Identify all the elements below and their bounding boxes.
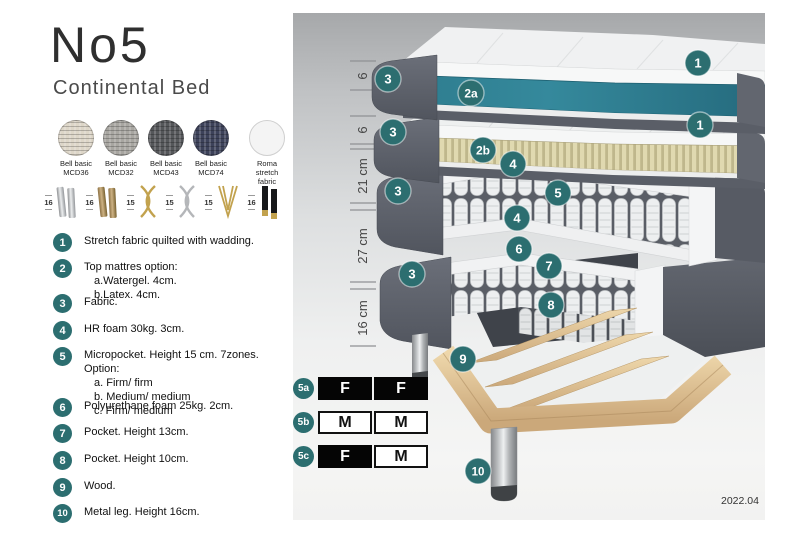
list-item-number-badge: 7 xyxy=(53,424,72,443)
list-item-number-badge: 6 xyxy=(53,398,72,417)
dimension-label: 6 xyxy=(355,72,370,79)
layer-badge: 1 xyxy=(685,50,711,76)
firmness-row-badge: 5b xyxy=(293,412,314,433)
svg-text:1: 1 xyxy=(694,56,701,71)
list-item-text: Wood. xyxy=(84,479,116,493)
firmness-row: 5c F M xyxy=(293,445,428,468)
firmness-row-badge: 5a xyxy=(293,378,314,399)
list-item-text: HR foam 30kg. 3cm. xyxy=(84,322,184,336)
firmness-cell: F xyxy=(318,445,372,468)
svg-text:3: 3 xyxy=(389,125,396,140)
list-item-subtext: a.Watergel. 4cm. xyxy=(94,274,178,288)
svg-text:3: 3 xyxy=(384,72,391,87)
dimension-scale: 6 6 21 cm 27 cm 16 cm xyxy=(350,61,376,346)
list-item-number-badge: 9 xyxy=(53,478,72,497)
firmness-row: 5a F F xyxy=(293,377,428,400)
list-item-number-badge: 2 xyxy=(53,259,72,278)
layer-badge: 2b xyxy=(470,137,496,163)
list-item-text: Polyurethane foam 25kg. 2cm. xyxy=(84,399,233,413)
metal-leg-front-foot xyxy=(491,485,517,501)
svg-text:8: 8 xyxy=(547,298,554,313)
base-fabric-side xyxy=(663,257,765,357)
svg-text:4: 4 xyxy=(513,211,521,226)
list-item: 10 Metal leg. Height 16cm. xyxy=(53,505,200,523)
layer-badge: 9 xyxy=(450,346,476,372)
bed-base-layer xyxy=(380,253,765,501)
svg-text:6: 6 xyxy=(515,242,522,257)
list-item-number-badge: 8 xyxy=(53,451,72,470)
layer-badge: 4 xyxy=(500,151,526,177)
svg-text:2a: 2a xyxy=(464,87,478,101)
list-item-text: Fabric. xyxy=(84,295,118,309)
list-item: 7 Pocket. Height 13cm. xyxy=(53,425,189,443)
list-item-text: Top mattres option: xyxy=(84,260,178,274)
layer-badge: 3 xyxy=(380,119,406,145)
layer-badge: 3 xyxy=(385,178,411,204)
layer-badge: 2a xyxy=(458,80,484,106)
layer-badge: 6 xyxy=(506,236,532,262)
firmness-cell: F xyxy=(374,377,428,400)
dimension-label: 16 cm xyxy=(355,300,370,335)
firmness-cell: M xyxy=(374,411,428,434)
dimension-label: 27 cm xyxy=(355,228,370,263)
firmness-row-badge: 5c xyxy=(293,446,314,467)
svg-text:1: 1 xyxy=(696,118,703,133)
svg-text:4: 4 xyxy=(509,157,517,172)
layer-badge: 1 xyxy=(687,112,713,138)
foam-corner-post xyxy=(689,175,717,266)
list-item: 1 Stretch fabric quilted with wadding. xyxy=(53,234,254,252)
firmness-cell: M xyxy=(318,411,372,434)
list-item-text: Pocket. Height 10cm. xyxy=(84,452,189,466)
list-item-text: Pocket. Height 13cm. xyxy=(84,425,189,439)
bed-cutaway-illustration: 6 6 21 cm 27 cm 16 cm xyxy=(293,13,765,520)
layer-badge: 10 xyxy=(465,458,491,484)
layer-badge: 3 xyxy=(375,66,401,92)
list-item-text: Stretch fabric quilted with wadding. xyxy=(84,234,254,248)
list-item-number-badge: 3 xyxy=(53,294,72,313)
svg-text:2b: 2b xyxy=(476,144,490,158)
svg-text:10: 10 xyxy=(472,467,485,479)
list-item-number-badge: 4 xyxy=(53,321,72,340)
layer-badge: 4 xyxy=(504,205,530,231)
svg-text:5: 5 xyxy=(554,186,561,201)
layer-badge: 8 xyxy=(538,292,564,318)
list-item: 8 Pocket. Height 10cm. xyxy=(53,452,189,470)
fabric-cap-right xyxy=(737,73,765,127)
version-label: 2022.04 xyxy=(721,495,759,507)
infographic-page: No5 Continental Bed Bell basicMCD36 Bell… xyxy=(0,0,800,533)
features-list: 1 Stretch fabric quilted with wadding. 2… xyxy=(0,0,293,533)
layer-badge: 7 xyxy=(536,253,562,279)
list-item-number-badge: 1 xyxy=(53,233,72,252)
firmness-cell: F xyxy=(318,377,372,400)
firmness-row: 5b M M xyxy=(293,411,428,434)
fabric-cap-right xyxy=(737,129,765,183)
list-item-text: Metal leg. Height 16cm. xyxy=(84,505,200,519)
layer-badge: 3 xyxy=(399,261,425,287)
dimension-label: 21 cm xyxy=(355,158,370,193)
list-item: 3 Fabric. xyxy=(53,295,118,313)
list-item-subtext: a. Firm/ firm xyxy=(94,376,293,390)
layer-badge: 5 xyxy=(545,180,571,206)
svg-text:9: 9 xyxy=(459,352,466,367)
list-item: 9 Wood. xyxy=(53,479,116,497)
firmness-cell: M xyxy=(374,445,428,468)
list-item-text: Micropocket. Height 15 cm. 7zones. Optio… xyxy=(84,348,293,376)
list-item-number-badge: 5 xyxy=(53,347,72,366)
list-item-number-badge: 10 xyxy=(53,504,72,523)
bed-diagram-panel: 6 6 21 cm 27 cm 16 cm xyxy=(293,13,765,520)
svg-text:7: 7 xyxy=(545,259,552,274)
dimension-label: 6 xyxy=(355,126,370,133)
list-item: 4 HR foam 30kg. 3cm. xyxy=(53,322,184,340)
svg-text:3: 3 xyxy=(408,267,415,282)
svg-text:3: 3 xyxy=(394,184,401,199)
list-item: 6 Polyurethane foam 25kg. 2cm. xyxy=(53,399,233,417)
left-info-column: No5 Continental Bed Bell basicMCD36 Bell… xyxy=(0,0,293,533)
